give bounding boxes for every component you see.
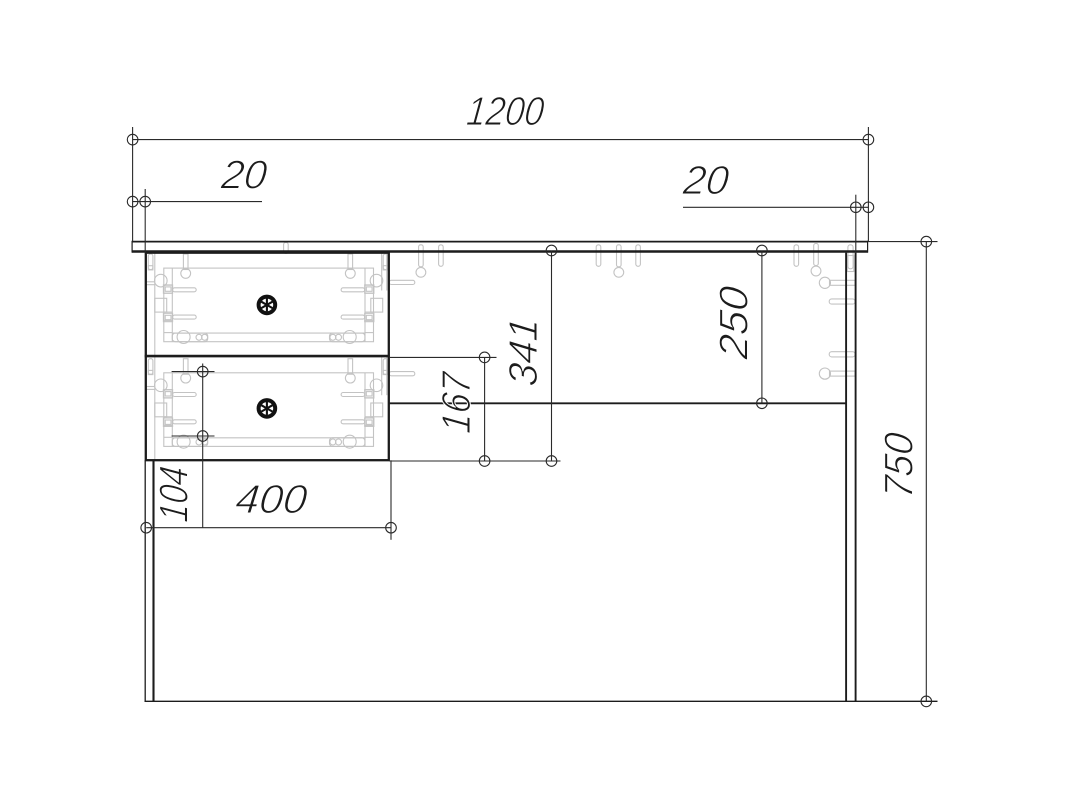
svg-text:400: 400	[234, 476, 310, 522]
svg-text:750: 750	[876, 430, 922, 500]
svg-text:104: 104	[151, 464, 197, 524]
svg-text:1200: 1200	[465, 88, 547, 134]
svg-text:250: 250	[711, 284, 757, 362]
svg-text:167: 167	[433, 369, 479, 435]
svg-text:20: 20	[680, 157, 731, 203]
svg-text:341: 341	[500, 315, 546, 388]
svg-text:20: 20	[218, 152, 269, 198]
